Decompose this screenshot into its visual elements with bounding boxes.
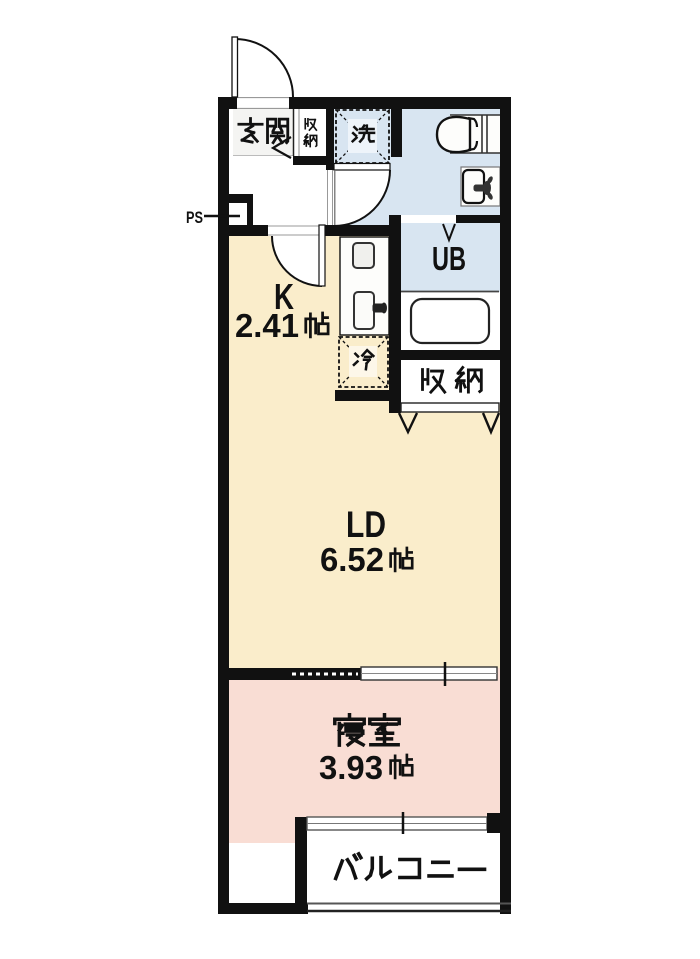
svg-text:2.41: 2.41 [235,308,299,345]
svg-text:PS: PS [186,208,203,227]
svg-text:UB: UB [432,240,466,277]
svg-text:6.52: 6.52 [320,542,384,579]
svg-text:LD: LD [346,504,386,545]
svg-text:3.93: 3.93 [319,749,383,786]
